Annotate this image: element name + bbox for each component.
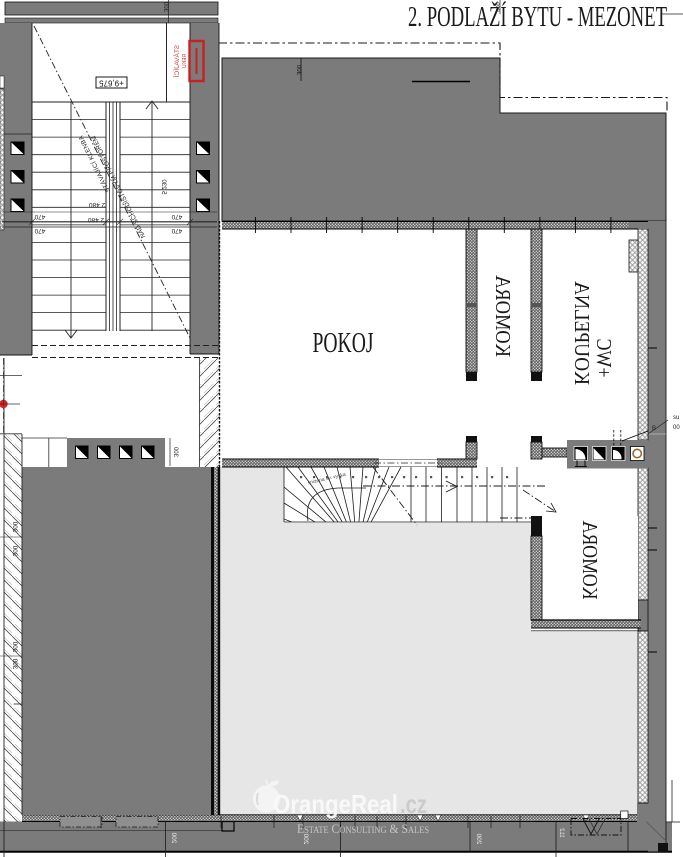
svg-text:Estate Consulting & Sales: Estate Consulting & Sales	[297, 822, 429, 836]
svg-text:+9,675: +9,675	[99, 78, 124, 87]
svg-text:STÁVAJÍCÍ: STÁVAJÍCÍ	[172, 45, 181, 78]
svg-text:OrangeReal: OrangeReal	[273, 789, 398, 819]
svg-text:+WC: +WC	[592, 339, 616, 378]
svg-text:300: 300	[11, 658, 18, 669]
svg-text:200: 200	[475, 833, 482, 844]
svg-text:5 230: 5 230	[160, 179, 166, 195]
svg-text:B: B	[652, 426, 656, 432]
svg-text:00: 00	[673, 425, 680, 431]
svg-text:300: 300	[11, 545, 18, 556]
svg-text:2 480: 2 480	[88, 201, 105, 208]
svg-text:300: 300	[11, 641, 18, 652]
svg-text:112: 112	[558, 828, 564, 838]
svg-text:470: 470	[34, 227, 45, 234]
svg-text:REKU: REKU	[182, 54, 188, 68]
svg-text:300: 300	[11, 521, 18, 532]
svg-text:KOUPELNA: KOUPELNA	[570, 281, 594, 385]
svg-text:300: 300	[162, 1, 168, 12]
svg-text:.cz: .cz	[400, 789, 427, 819]
svg-text:su: su	[673, 415, 679, 421]
svg-text:200: 200	[170, 832, 177, 843]
svg-text:KOMORA: KOMORA	[491, 275, 515, 357]
svg-text:470: 470	[171, 213, 182, 220]
svg-text:KOMORA: KOMORA	[578, 520, 602, 599]
svg-text:300: 300	[295, 64, 301, 75]
svg-text:300: 300	[172, 446, 178, 457]
svg-text:POKOJ: POKOJ	[313, 328, 374, 359]
svg-text:470: 470	[34, 213, 45, 220]
svg-text:2. PODLAŽÍ BYTU - MEZONET: 2. PODLAŽÍ BYTU - MEZONET	[408, 2, 667, 33]
svg-text:2 480: 2 480	[87, 216, 104, 223]
svg-text:470: 470	[171, 227, 182, 234]
